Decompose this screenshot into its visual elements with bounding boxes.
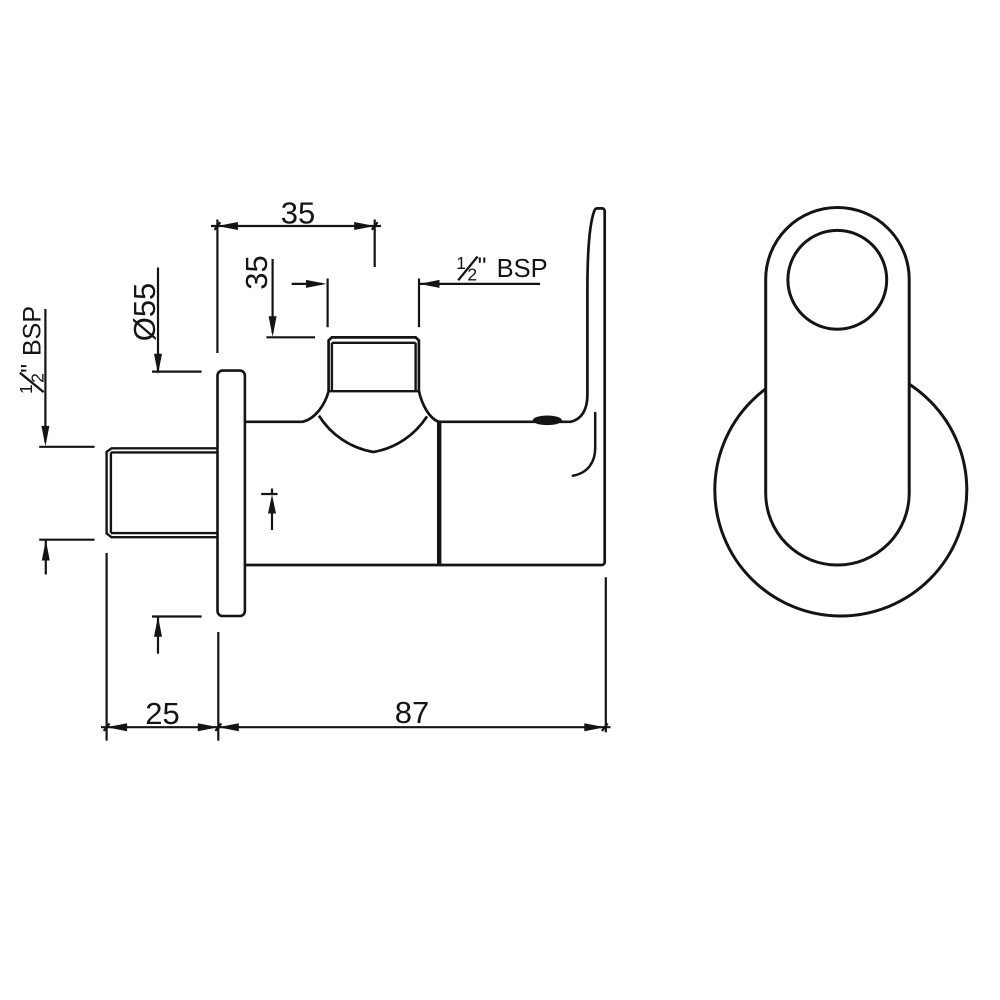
svg-text:": " xyxy=(16,364,44,373)
svg-text:BSP: BSP xyxy=(18,306,46,356)
svg-text:25: 25 xyxy=(145,696,179,731)
svg-text:Ø55: Ø55 xyxy=(127,283,162,342)
svg-text:2: 2 xyxy=(28,373,48,383)
svg-text:2: 2 xyxy=(467,264,477,284)
svg-text:87: 87 xyxy=(395,695,429,730)
svg-text:35: 35 xyxy=(239,255,274,289)
svg-text:": " xyxy=(478,253,487,281)
svg-text:35: 35 xyxy=(281,196,315,231)
svg-text:1: 1 xyxy=(16,384,36,394)
svg-text:BSP: BSP xyxy=(497,255,548,283)
svg-text:1: 1 xyxy=(456,253,466,273)
